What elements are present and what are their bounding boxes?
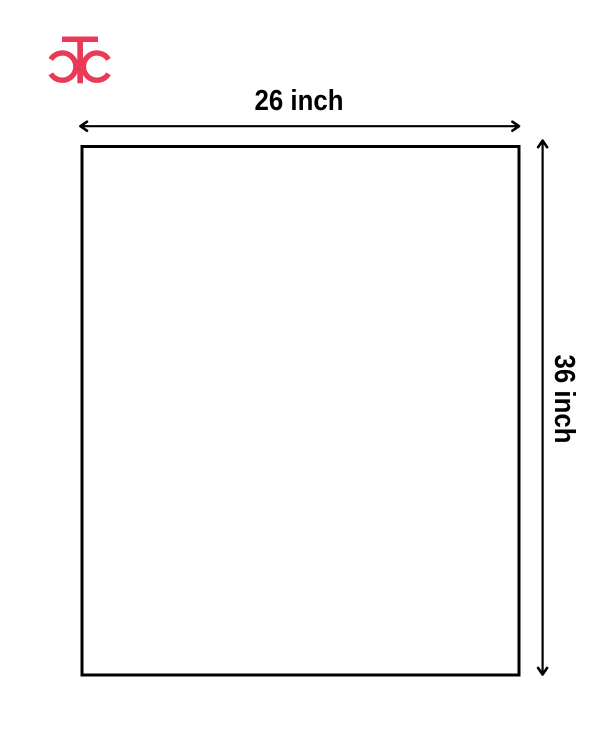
- svg-text:26 inch: 26 inch: [255, 84, 344, 117]
- svg-text:36 inch: 36 inch: [549, 355, 582, 444]
